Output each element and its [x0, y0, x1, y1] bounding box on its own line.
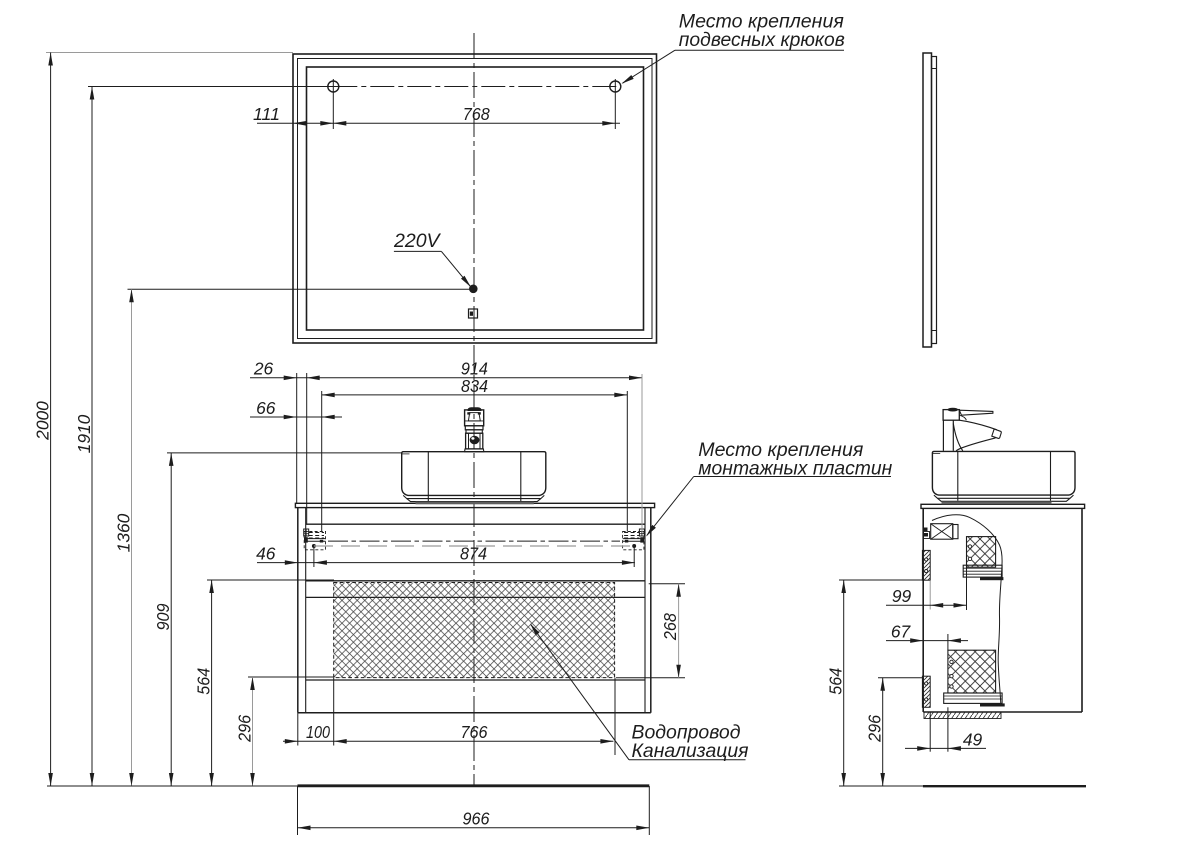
svg-text:834: 834 — [461, 376, 488, 396]
svg-text:564: 564 — [826, 667, 846, 694]
svg-text:1910: 1910 — [74, 414, 94, 453]
svg-text:296: 296 — [234, 715, 254, 743]
svg-text:Канализация: Канализация — [632, 741, 749, 762]
svg-text:100: 100 — [306, 722, 330, 742]
svg-text:2000: 2000 — [33, 401, 53, 441]
svg-text:966: 966 — [463, 809, 490, 829]
svg-text:111: 111 — [253, 104, 280, 124]
svg-text:подвесных крюков: подвесных крюков — [679, 30, 845, 51]
svg-text:909: 909 — [153, 603, 173, 630]
svg-text:768: 768 — [463, 104, 490, 124]
svg-text:1360: 1360 — [113, 513, 133, 552]
svg-text:296: 296 — [865, 715, 885, 743]
svg-text:26: 26 — [253, 359, 274, 379]
svg-text:268: 268 — [660, 613, 680, 641]
svg-text:49: 49 — [963, 729, 983, 749]
svg-text:46: 46 — [256, 544, 276, 564]
svg-text:564: 564 — [194, 667, 214, 694]
svg-text:99: 99 — [892, 586, 912, 606]
svg-text:220V: 220V — [393, 230, 442, 252]
svg-text:874: 874 — [460, 544, 487, 564]
svg-text:66: 66 — [256, 398, 276, 418]
svg-text:766: 766 — [461, 722, 488, 742]
svg-text:67: 67 — [891, 622, 912, 642]
